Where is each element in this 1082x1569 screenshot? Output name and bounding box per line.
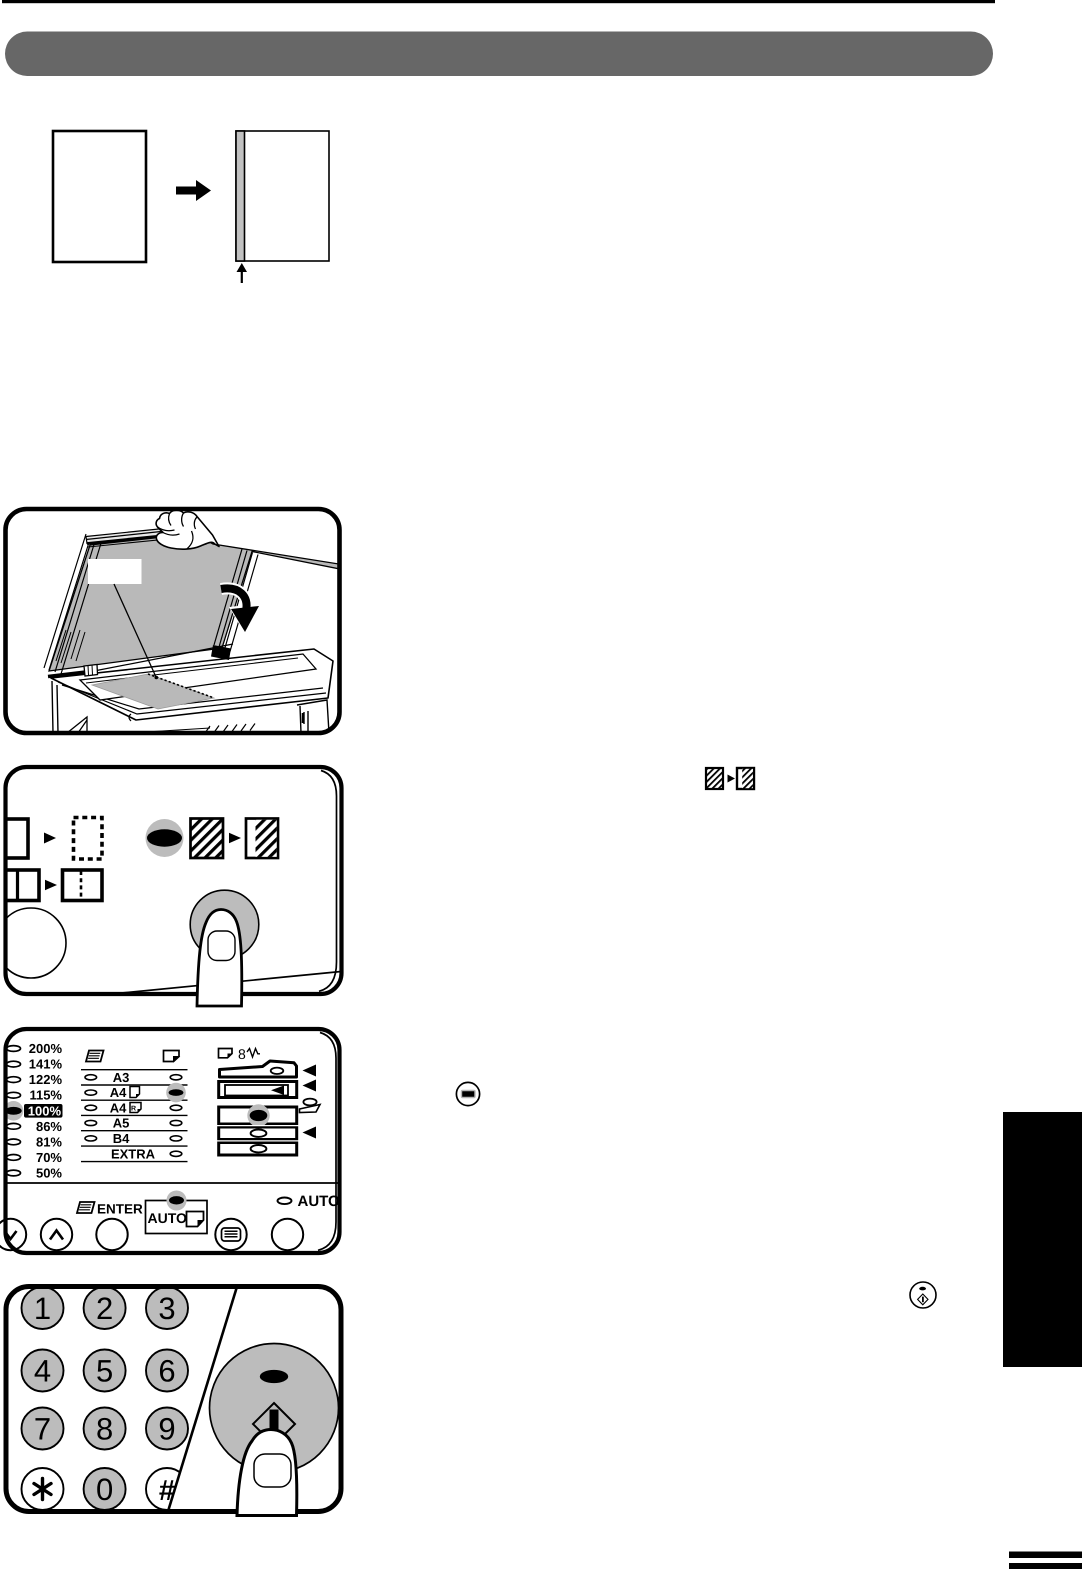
svg-text:50%: 50% [36, 1166, 62, 1181]
svg-text:R: R [131, 1106, 136, 1113]
svg-text:2: 2 [96, 1291, 113, 1326]
svg-text:4: 4 [34, 1354, 51, 1389]
svg-text:115%: 115% [29, 1088, 62, 1103]
svg-text:A5: A5 [113, 1116, 130, 1131]
svg-text:86%: 86% [36, 1119, 62, 1134]
svg-text:122%: 122% [29, 1072, 63, 1087]
svg-text:81%: 81% [36, 1134, 62, 1149]
svg-text:0: 0 [96, 1472, 113, 1507]
svg-text:AUTO: AUTO [148, 1210, 188, 1226]
svg-text:B4: B4 [113, 1131, 130, 1146]
svg-text:AUTO %: AUTO % [298, 1193, 358, 1210]
svg-text:8: 8 [96, 1412, 113, 1447]
svg-text:#: # [159, 1475, 175, 1507]
svg-text:A4: A4 [110, 1100, 127, 1115]
svg-text:141%: 141% [29, 1057, 63, 1072]
svg-text:3: 3 [158, 1291, 175, 1326]
svg-text:6: 6 [158, 1354, 175, 1389]
svg-text:5: 5 [96, 1354, 113, 1389]
svg-text:200%: 200% [29, 1041, 63, 1056]
svg-text:EXTRA: EXTRA [111, 1146, 156, 1161]
svg-text:7: 7 [34, 1412, 51, 1447]
svg-text:8: 8 [238, 1046, 246, 1062]
svg-text:70%: 70% [36, 1150, 62, 1165]
svg-text:A3: A3 [113, 1070, 130, 1085]
svg-text:A4: A4 [110, 1085, 127, 1100]
svg-text:1: 1 [34, 1291, 51, 1326]
svg-text:ENTER: ENTER [97, 1202, 143, 1217]
svg-text:100%: 100% [28, 1103, 62, 1118]
svg-text:9: 9 [158, 1412, 175, 1447]
